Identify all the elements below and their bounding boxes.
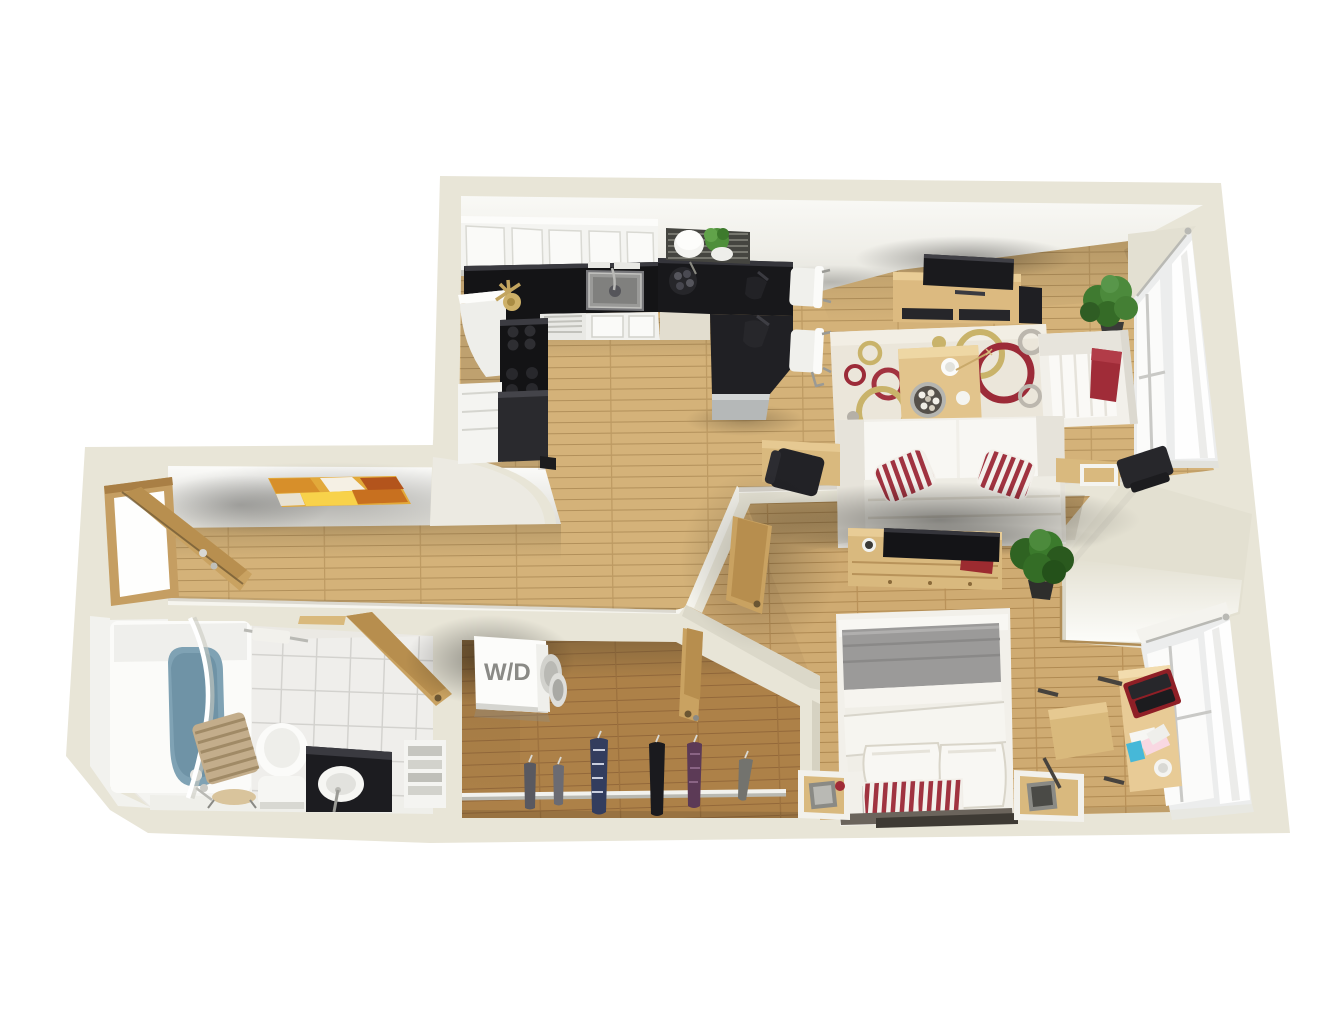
svg-text:W/D: W/D <box>484 659 531 686</box>
